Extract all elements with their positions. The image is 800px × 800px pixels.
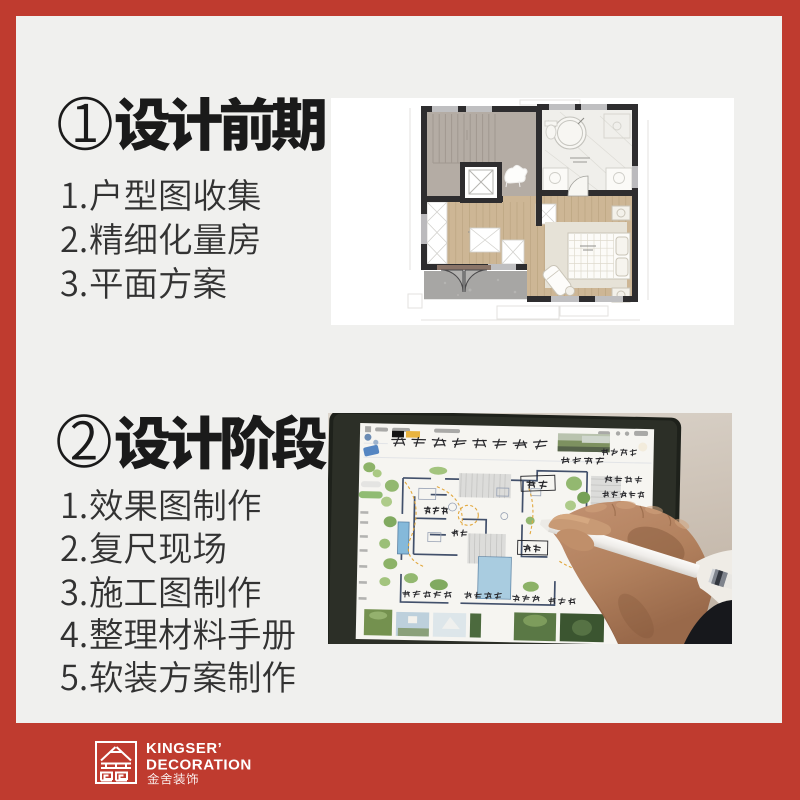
svg-text:KINGSER’: KINGSER’: [146, 741, 222, 757]
svg-text:DECORATION: DECORATION: [146, 757, 252, 774]
